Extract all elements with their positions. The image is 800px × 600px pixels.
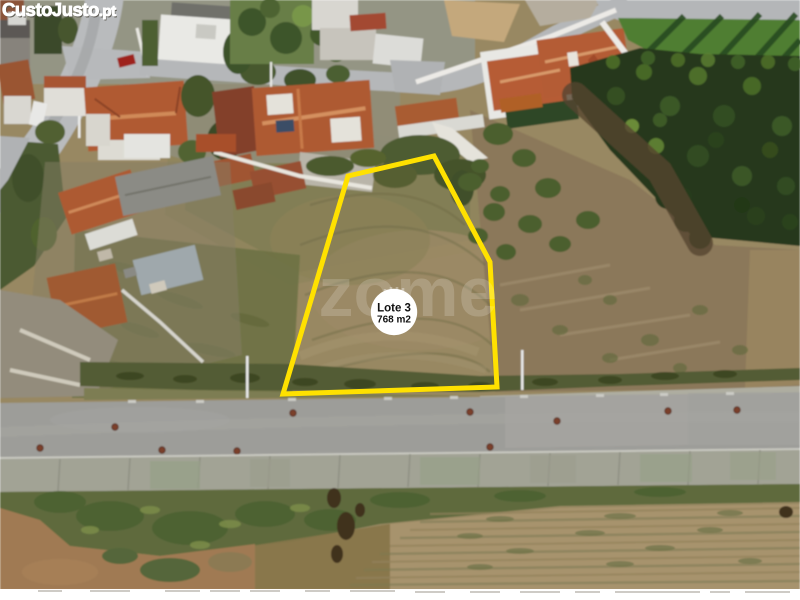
svg-text:768 m2: 768 m2 xyxy=(377,315,411,326)
svg-text:Lote 3: Lote 3 xyxy=(377,303,411,315)
svg-text:CustoJusto.pt: CustoJusto.pt xyxy=(2,0,116,20)
